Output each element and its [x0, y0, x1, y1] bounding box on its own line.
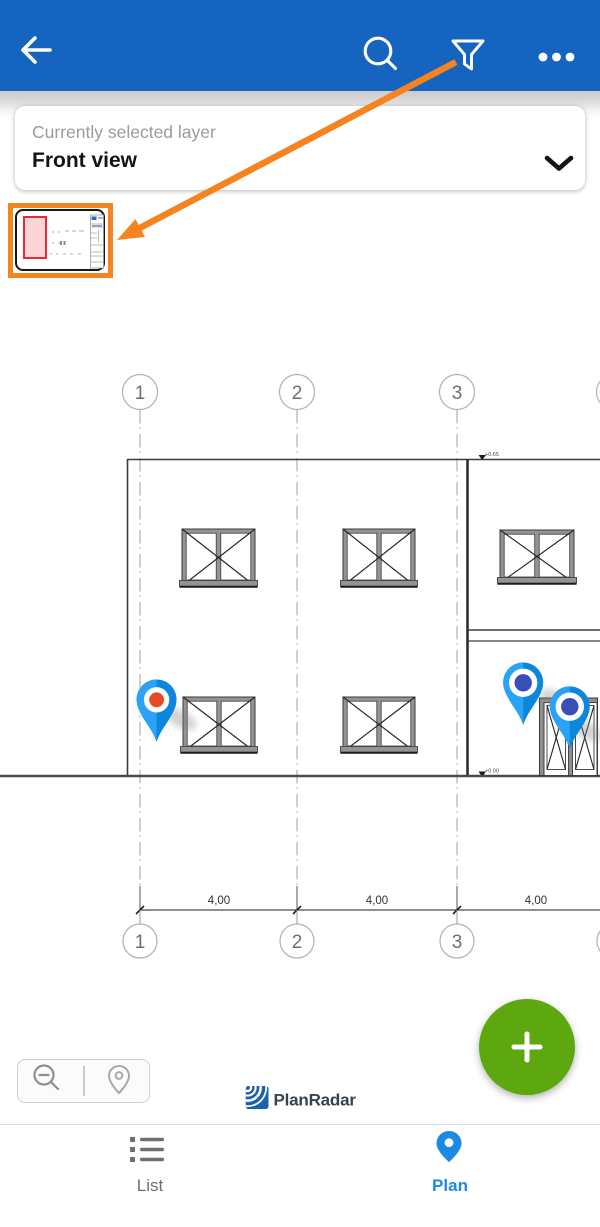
svg-text:4,00: 4,00 [208, 895, 230, 907]
svg-text:1: 1 [135, 932, 146, 953]
svg-text:+0.00: +0.00 [485, 769, 499, 775]
svg-text:2: 2 [292, 383, 303, 404]
svg-text:4,00: 4,00 [366, 895, 388, 907]
svg-text:+0.65: +0.65 [485, 452, 499, 458]
svg-text:PlanRadar: PlanRadar [274, 1091, 357, 1110]
svg-text:3: 3 [452, 383, 463, 404]
svg-text:1: 1 [135, 383, 146, 404]
svg-text:3: 3 [452, 932, 463, 953]
svg-text:2: 2 [292, 932, 303, 953]
svg-text:4,00: 4,00 [525, 895, 547, 907]
